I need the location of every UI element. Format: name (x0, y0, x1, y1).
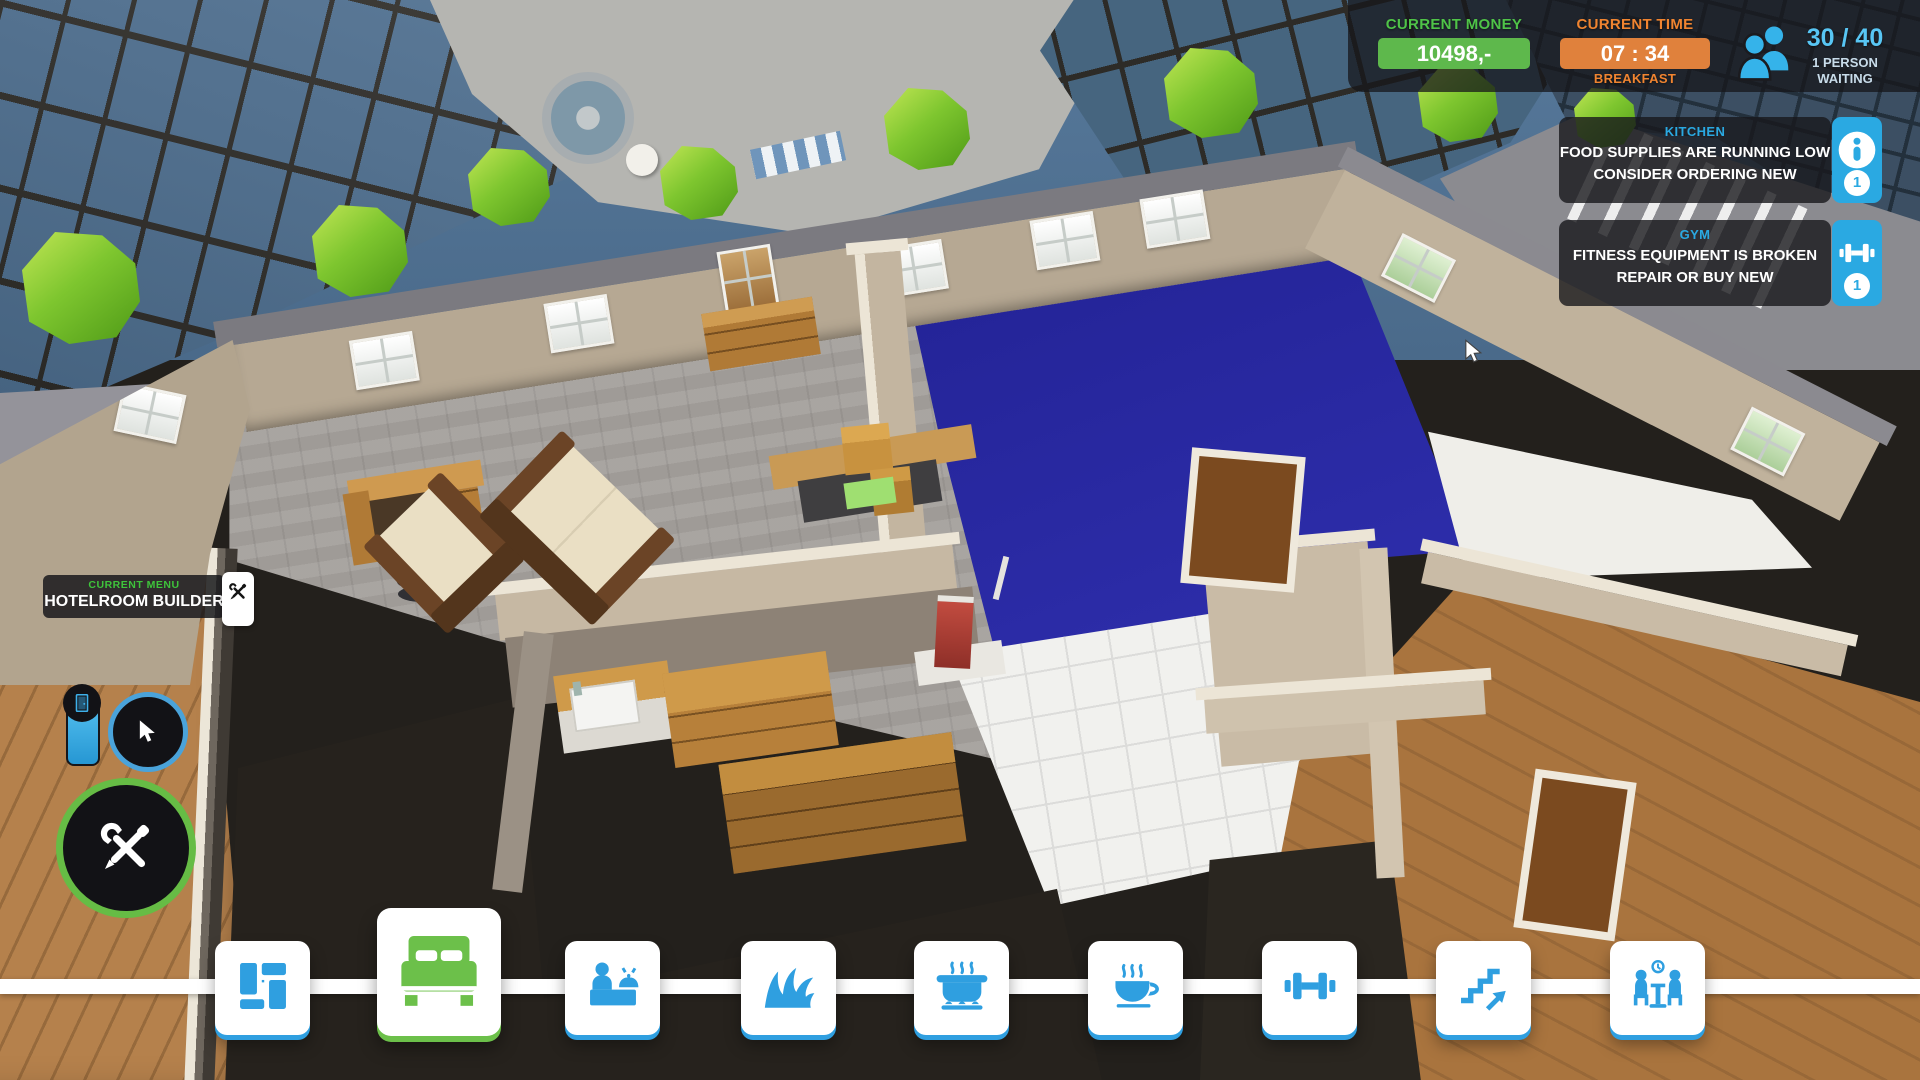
stairs-icon (1455, 957, 1513, 1020)
window (1730, 407, 1805, 477)
current-menu-label: CURRENT MENU (43, 579, 225, 591)
dumbbell-icon (1837, 233, 1877, 273)
reception-icon (584, 957, 642, 1020)
notification-category: KITCHEN (1559, 124, 1831, 139)
door-panel (1522, 778, 1627, 933)
tools-icon (226, 580, 250, 604)
door-tool-button[interactable] (63, 684, 101, 722)
notification-gym-button[interactable]: 1 (1832, 220, 1882, 306)
toolbar-button-reception[interactable] (565, 941, 660, 1035)
bed-icon (396, 927, 482, 1018)
cooking-pot-icon (933, 957, 991, 1020)
pool-door[interactable] (1180, 447, 1305, 592)
toolbar-button-floorplan[interactable] (215, 941, 310, 1035)
awning (750, 131, 846, 179)
storage-box[interactable] (841, 423, 894, 476)
game-viewport[interactable]: CURRENT MONEY 10498,- CURRENT TIME 07 : … (0, 0, 1920, 1080)
current-menu-panel: CURRENT MENU HOTELROOM BUILDER (43, 575, 225, 618)
guest-count: 30 / 40 (1792, 24, 1898, 53)
window (1029, 211, 1100, 270)
notification-line2: CONSIDER ORDERING NEW (1559, 166, 1831, 183)
heavy-bag[interactable] (934, 595, 974, 669)
dining-icon (1629, 957, 1687, 1020)
notification-kitchen[interactable]: KITCHEN FOOD SUPPLIES ARE RUNNING LOW CO… (1559, 117, 1831, 203)
coffee-icon (1107, 957, 1165, 1020)
floorplan-icon (234, 957, 292, 1020)
money-display: CURRENT MONEY 10498,- (1378, 0, 1530, 92)
door-panel (1189, 456, 1297, 584)
notification-kitchen-button[interactable]: 1 (1832, 117, 1882, 203)
kitchen-sink[interactable] (569, 680, 640, 733)
build-menu-button[interactable] (56, 778, 196, 918)
grass-icon (760, 957, 818, 1020)
time-period: BREAKFAST (1560, 71, 1710, 86)
toolbar-button-stairs[interactable] (1436, 941, 1531, 1035)
hud-topbar: CURRENT MONEY 10498,- CURRENT TIME 07 : … (1348, 0, 1920, 92)
info-icon (1837, 130, 1877, 170)
umbrella (626, 144, 658, 176)
toolbar-button-kitchen[interactable] (914, 941, 1009, 1035)
mouse-cursor (1460, 336, 1488, 368)
toolbar-button-bedroom[interactable] (377, 908, 501, 1036)
notification-category: GYM (1559, 227, 1831, 242)
guest-waiting-line2: WAITING (1792, 71, 1898, 86)
dumbbell-icon (1281, 957, 1339, 1020)
notification-badge: 1 (1844, 170, 1870, 196)
guest-waiting-line1: 1 PERSON (1792, 55, 1898, 70)
select-tool-button[interactable] (108, 692, 188, 772)
notification-badge: 1 (1844, 273, 1870, 299)
toolbar-button-gym[interactable] (1262, 941, 1357, 1035)
window (1381, 233, 1456, 303)
notification-line1: FITNESS EQUIPMENT IS BROKEN (1559, 247, 1831, 264)
people-icon (1734, 20, 1796, 82)
notification-gym[interactable]: GYM FITNESS EQUIPMENT IS BROKEN REPAIR O… (1559, 220, 1831, 306)
money-value: 10498,- (1378, 38, 1530, 69)
guest-counter: 30 / 40 1 PERSON WAITING (1730, 0, 1900, 92)
window (349, 331, 420, 390)
current-menu-value: HOTELROOM BUILDER (43, 593, 225, 611)
window (1139, 189, 1210, 248)
notification-line1: FOOD SUPPLIES ARE RUNNING LOW (1559, 144, 1831, 161)
toolbar-button-restaurant[interactable] (1610, 941, 1705, 1035)
window (543, 294, 614, 353)
door-icon (71, 692, 93, 714)
fountain (542, 72, 634, 164)
tools-icon (92, 814, 160, 882)
toolbar-button-garden[interactable] (741, 941, 836, 1035)
current-menu-button[interactable] (222, 572, 254, 626)
time-value: 07 : 34 (1560, 38, 1710, 69)
toolbar-button-cafe[interactable] (1088, 941, 1183, 1035)
cursor-icon (134, 716, 162, 748)
notification-line2: REPAIR OR BUY NEW (1559, 269, 1831, 286)
time-display: CURRENT TIME 07 : 34 BREAKFAST (1560, 0, 1710, 92)
money-label: CURRENT MONEY (1378, 16, 1530, 33)
time-label: CURRENT TIME (1560, 16, 1710, 33)
